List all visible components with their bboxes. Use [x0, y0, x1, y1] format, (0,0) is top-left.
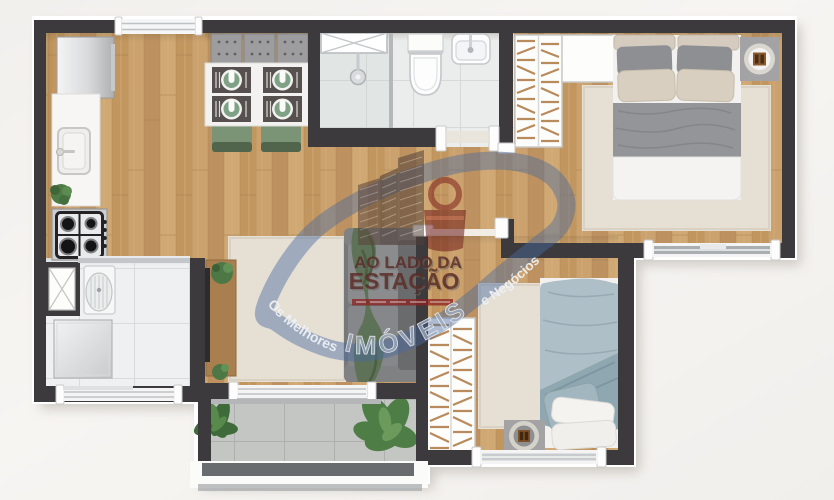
svg-text:ESTAÇÃO: ESTAÇÃO: [349, 267, 460, 294]
